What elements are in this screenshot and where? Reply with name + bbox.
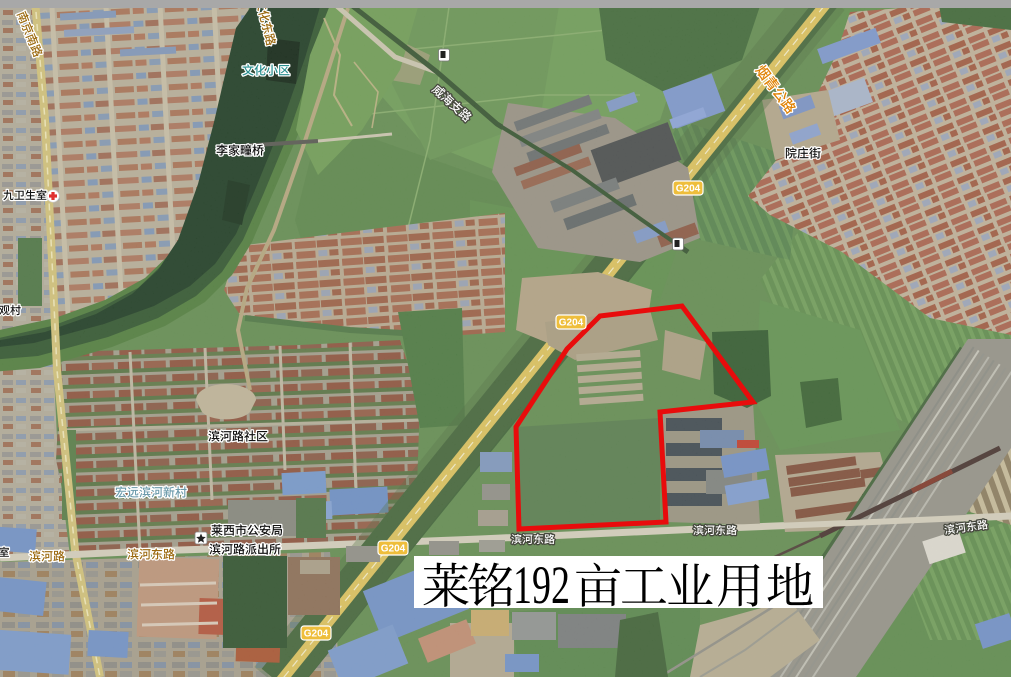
svg-text:G204: G204	[559, 318, 584, 329]
svg-text:G204: G204	[304, 629, 329, 640]
svg-text:G204: G204	[676, 184, 701, 195]
svg-text:192: 192	[513, 555, 570, 615]
svg-text:G204: G204	[381, 544, 406, 555]
